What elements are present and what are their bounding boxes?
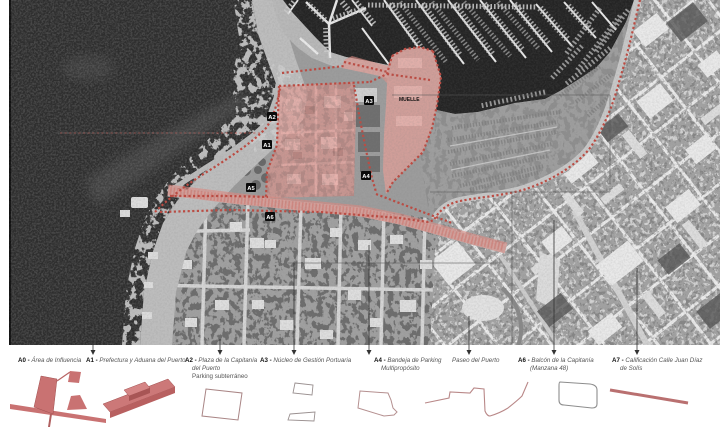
svg-text:A7 - Calificación Calle Juan D: A7 - Calificación Calle Juan Díaz (612, 357, 703, 364)
svg-text:del Puerto: del Puerto (192, 365, 221, 372)
svg-text:A2 - Plaza de la Capitanía: A2 - Plaza de la Capitanía (185, 357, 258, 364)
svg-text:A6 - Balcón de la Capitanía: A6 - Balcón de la Capitanía (518, 357, 594, 364)
svg-text:(Manzana 48): (Manzana 48) (530, 365, 568, 372)
svg-text:A6: A6 (266, 215, 274, 221)
svg-text:Paseo del Puerto: Paseo del Puerto (452, 357, 500, 364)
svg-text:Multipropósito: Multipropósito (381, 365, 420, 372)
svg-text:A1: A1 (263, 143, 271, 149)
svg-text:A2: A2 (268, 115, 275, 121)
svg-text:A3 - Núcleo de Gestión Portuar: A3 - Núcleo de Gestión Portuaria (260, 357, 352, 364)
svg-text:A4: A4 (362, 174, 370, 180)
svg-text:A3: A3 (365, 99, 373, 105)
svg-text:Parking subterráneo: Parking subterráneo (192, 373, 248, 380)
svg-text:A5: A5 (247, 186, 255, 192)
svg-text:A0 - Área de Influencia: A0 - Área de Influencia (18, 357, 82, 364)
svg-text:MUELLE: MUELLE (399, 97, 420, 103)
svg-text:de Solís: de Solís (620, 365, 642, 372)
svg-text:A1 - Prefectura y Aduana del P: A1 - Prefectura y Aduana del Puerto (86, 357, 186, 364)
svg-text:A4 - Bandeja de Parking: A4 - Bandeja de Parking (374, 357, 442, 364)
